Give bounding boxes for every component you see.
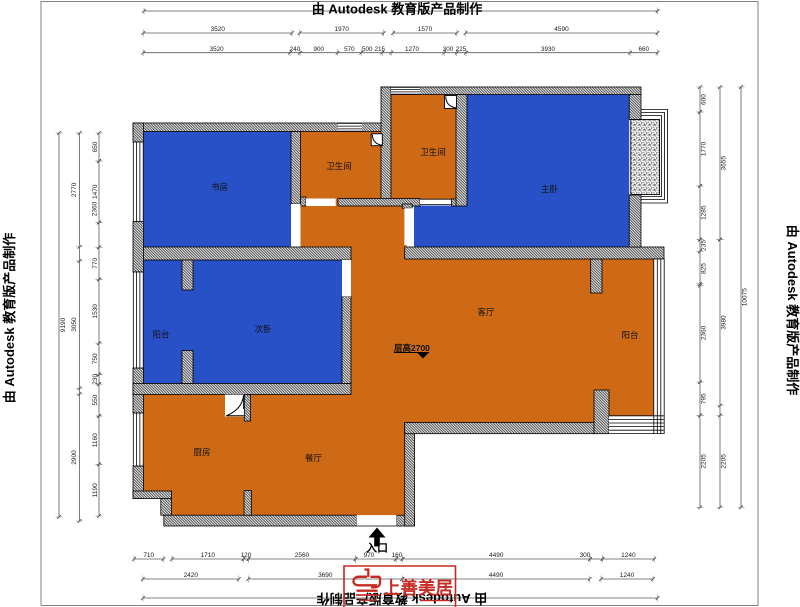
- svg-text:2360: 2360: [701, 325, 708, 340]
- svg-text:2900: 2900: [71, 450, 78, 465]
- svg-text:570: 570: [344, 46, 355, 53]
- svg-text:卫生间: 卫生间: [326, 161, 352, 171]
- svg-text:客厅: 客厅: [477, 307, 495, 317]
- svg-text:2770: 2770: [71, 182, 78, 197]
- svg-text:825: 825: [701, 263, 708, 274]
- svg-text:120: 120: [241, 552, 252, 559]
- svg-text:3520: 3520: [210, 26, 225, 33]
- svg-text:次卧: 次卧: [254, 324, 272, 334]
- svg-text:750: 750: [92, 353, 99, 364]
- svg-text:上善美居: 上善美居: [383, 578, 453, 598]
- svg-text:层高2700: 层高2700: [393, 343, 430, 353]
- svg-text:书房: 书房: [211, 182, 228, 192]
- svg-text:2205: 2205: [701, 454, 708, 469]
- svg-text:500: 500: [362, 46, 373, 53]
- svg-text:770: 770: [92, 258, 99, 269]
- svg-text:710: 710: [143, 552, 154, 559]
- svg-text:300: 300: [443, 46, 454, 53]
- svg-text:阳台: 阳台: [621, 330, 638, 340]
- svg-text:9190: 9190: [60, 317, 67, 332]
- svg-text:由 Autodesk 教育版产品制作: 由 Autodesk 教育版产品制作: [312, 2, 482, 17]
- svg-text:1530: 1530: [92, 304, 99, 319]
- svg-text:240: 240: [290, 46, 301, 53]
- svg-text:由 Autodesk 教育版产品制作: 由 Autodesk 教育版产品制作: [785, 225, 800, 395]
- svg-text:1770: 1770: [701, 141, 708, 156]
- svg-text:215: 215: [375, 46, 386, 53]
- svg-text:650: 650: [92, 141, 99, 152]
- svg-text:600: 600: [701, 94, 708, 105]
- svg-text:230: 230: [92, 373, 99, 384]
- svg-text:4490: 4490: [489, 552, 504, 559]
- svg-text:225: 225: [456, 46, 467, 53]
- svg-text:3930: 3930: [541, 46, 556, 53]
- svg-text:厨房: 厨房: [193, 447, 210, 457]
- svg-text:235: 235: [701, 240, 708, 251]
- svg-text:1240: 1240: [620, 572, 635, 579]
- svg-text:1470: 1470: [92, 184, 99, 199]
- svg-text:4590: 4590: [554, 26, 569, 33]
- svg-text:3690: 3690: [318, 572, 333, 579]
- svg-text:1285: 1285: [701, 205, 708, 220]
- svg-text:1160: 1160: [92, 433, 99, 447]
- svg-text:2560: 2560: [295, 552, 310, 559]
- svg-text:3520: 3520: [210, 46, 225, 53]
- svg-text:550: 550: [92, 394, 99, 405]
- svg-text:2420: 2420: [184, 572, 199, 579]
- svg-text:卫生间: 卫生间: [420, 147, 446, 157]
- svg-text:2360: 2360: [92, 201, 99, 216]
- svg-text:1240: 1240: [621, 552, 636, 559]
- svg-text:入口: 入口: [366, 542, 388, 555]
- svg-text:4490: 4490: [489, 572, 504, 579]
- svg-text:900: 900: [313, 46, 324, 53]
- svg-text:1710: 1710: [201, 552, 216, 559]
- svg-text:795: 795: [701, 393, 708, 404]
- svg-text:3980: 3980: [721, 315, 728, 330]
- svg-text:660: 660: [639, 46, 650, 53]
- svg-text:2205: 2205: [721, 454, 728, 469]
- svg-text:3655: 3655: [721, 156, 728, 171]
- svg-text:主卧: 主卧: [541, 184, 559, 194]
- svg-text:10075: 10075: [742, 288, 749, 306]
- svg-text:1190: 1190: [92, 483, 99, 497]
- svg-text:1970: 1970: [334, 26, 349, 33]
- svg-text:160: 160: [392, 552, 403, 559]
- svg-text:1270: 1270: [405, 46, 420, 53]
- svg-text:阳台: 阳台: [152, 330, 169, 340]
- svg-text:1570: 1570: [418, 26, 433, 33]
- svg-text:餐厅: 餐厅: [305, 453, 323, 463]
- svg-text:300: 300: [580, 552, 591, 559]
- svg-text:3050: 3050: [71, 317, 78, 332]
- svg-text:由 Autodesk 教育版产品制作: 由 Autodesk 教育版产品制作: [2, 233, 17, 403]
